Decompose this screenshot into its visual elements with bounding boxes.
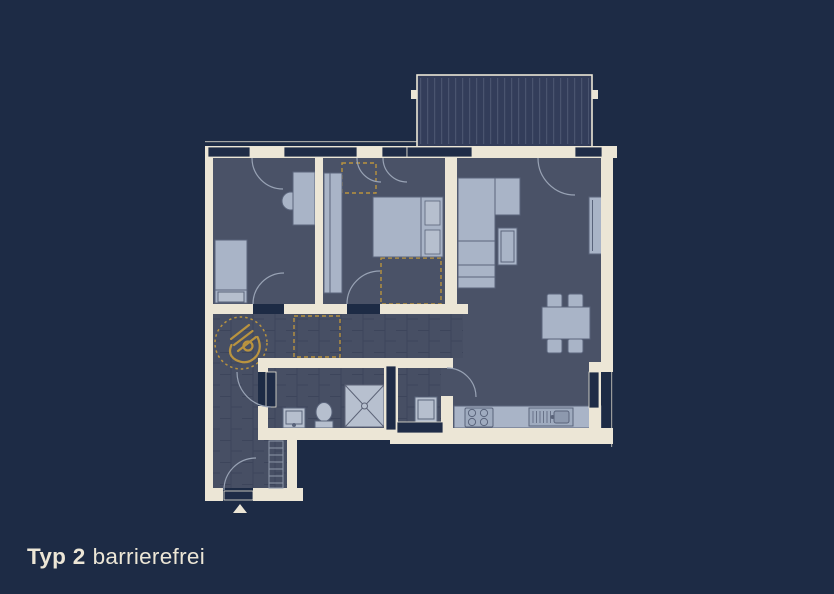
wall-storage-bottom	[390, 432, 443, 444]
window-living-top-right	[575, 147, 602, 157]
hallway-floor	[213, 314, 463, 358]
storage-door-gap-floor	[441, 368, 453, 396]
entry-floor	[213, 440, 287, 488]
entrance-door-leaf	[224, 491, 253, 500]
dining-table	[542, 307, 590, 339]
washing-machine	[415, 397, 437, 422]
duct-shaft	[386, 366, 396, 430]
wall-bath-left-a	[258, 358, 268, 372]
window-bedroom1	[208, 147, 250, 157]
coffee-table	[498, 228, 517, 265]
wall-bedroom1-bedroom2	[315, 158, 323, 304]
window-bedroom2-a	[382, 147, 407, 157]
wardrobe	[324, 173, 342, 293]
kitchen-sink	[529, 408, 573, 426]
wall-entry-bottom-left	[205, 488, 223, 501]
wall-right-step	[589, 362, 613, 372]
window-top-center	[284, 147, 357, 157]
wall-entry-bottom-right	[253, 488, 303, 501]
wall-hall-c	[380, 304, 468, 314]
caption-variant-label: barrierefrei	[93, 544, 205, 569]
wall-kitchen-bottom	[442, 428, 613, 444]
wall-storage-corner	[441, 358, 453, 368]
sideboard	[589, 197, 602, 254]
wall-bath-bottom	[258, 428, 390, 440]
caption: Typ 2barrierefrei	[27, 544, 205, 570]
corridor-floor	[213, 358, 258, 440]
entrance-marker-triangle	[233, 504, 247, 513]
outer-hairline-top	[205, 141, 417, 142]
wall-hall-a	[213, 304, 253, 314]
balcony-bracket-right	[592, 90, 598, 99]
cooktop	[465, 408, 493, 427]
wall-bedroom2-living	[445, 158, 457, 304]
balcony	[411, 75, 598, 147]
bathroom-door-leaf	[266, 372, 276, 407]
double-bed	[373, 197, 443, 257]
balcony-decking	[420, 78, 589, 144]
window-bedroom2-b	[407, 147, 472, 157]
wall-left	[205, 146, 213, 500]
caption-type-label: Typ 2	[27, 544, 86, 569]
desk	[293, 172, 315, 225]
washbasin	[283, 408, 305, 428]
floor-plan-canvas: Typ 2barrierefrei	[0, 0, 834, 594]
balcony-bracket-left	[411, 90, 417, 99]
window-kitchen	[589, 372, 599, 408]
wall-bath-top	[258, 358, 453, 368]
single-bed	[215, 240, 247, 303]
window-storage	[397, 422, 443, 433]
wall-right	[601, 146, 613, 363]
toilet	[315, 403, 333, 429]
wall-hall-b	[284, 304, 347, 314]
shower	[345, 385, 384, 427]
floor-plan-drawing	[0, 0, 834, 594]
